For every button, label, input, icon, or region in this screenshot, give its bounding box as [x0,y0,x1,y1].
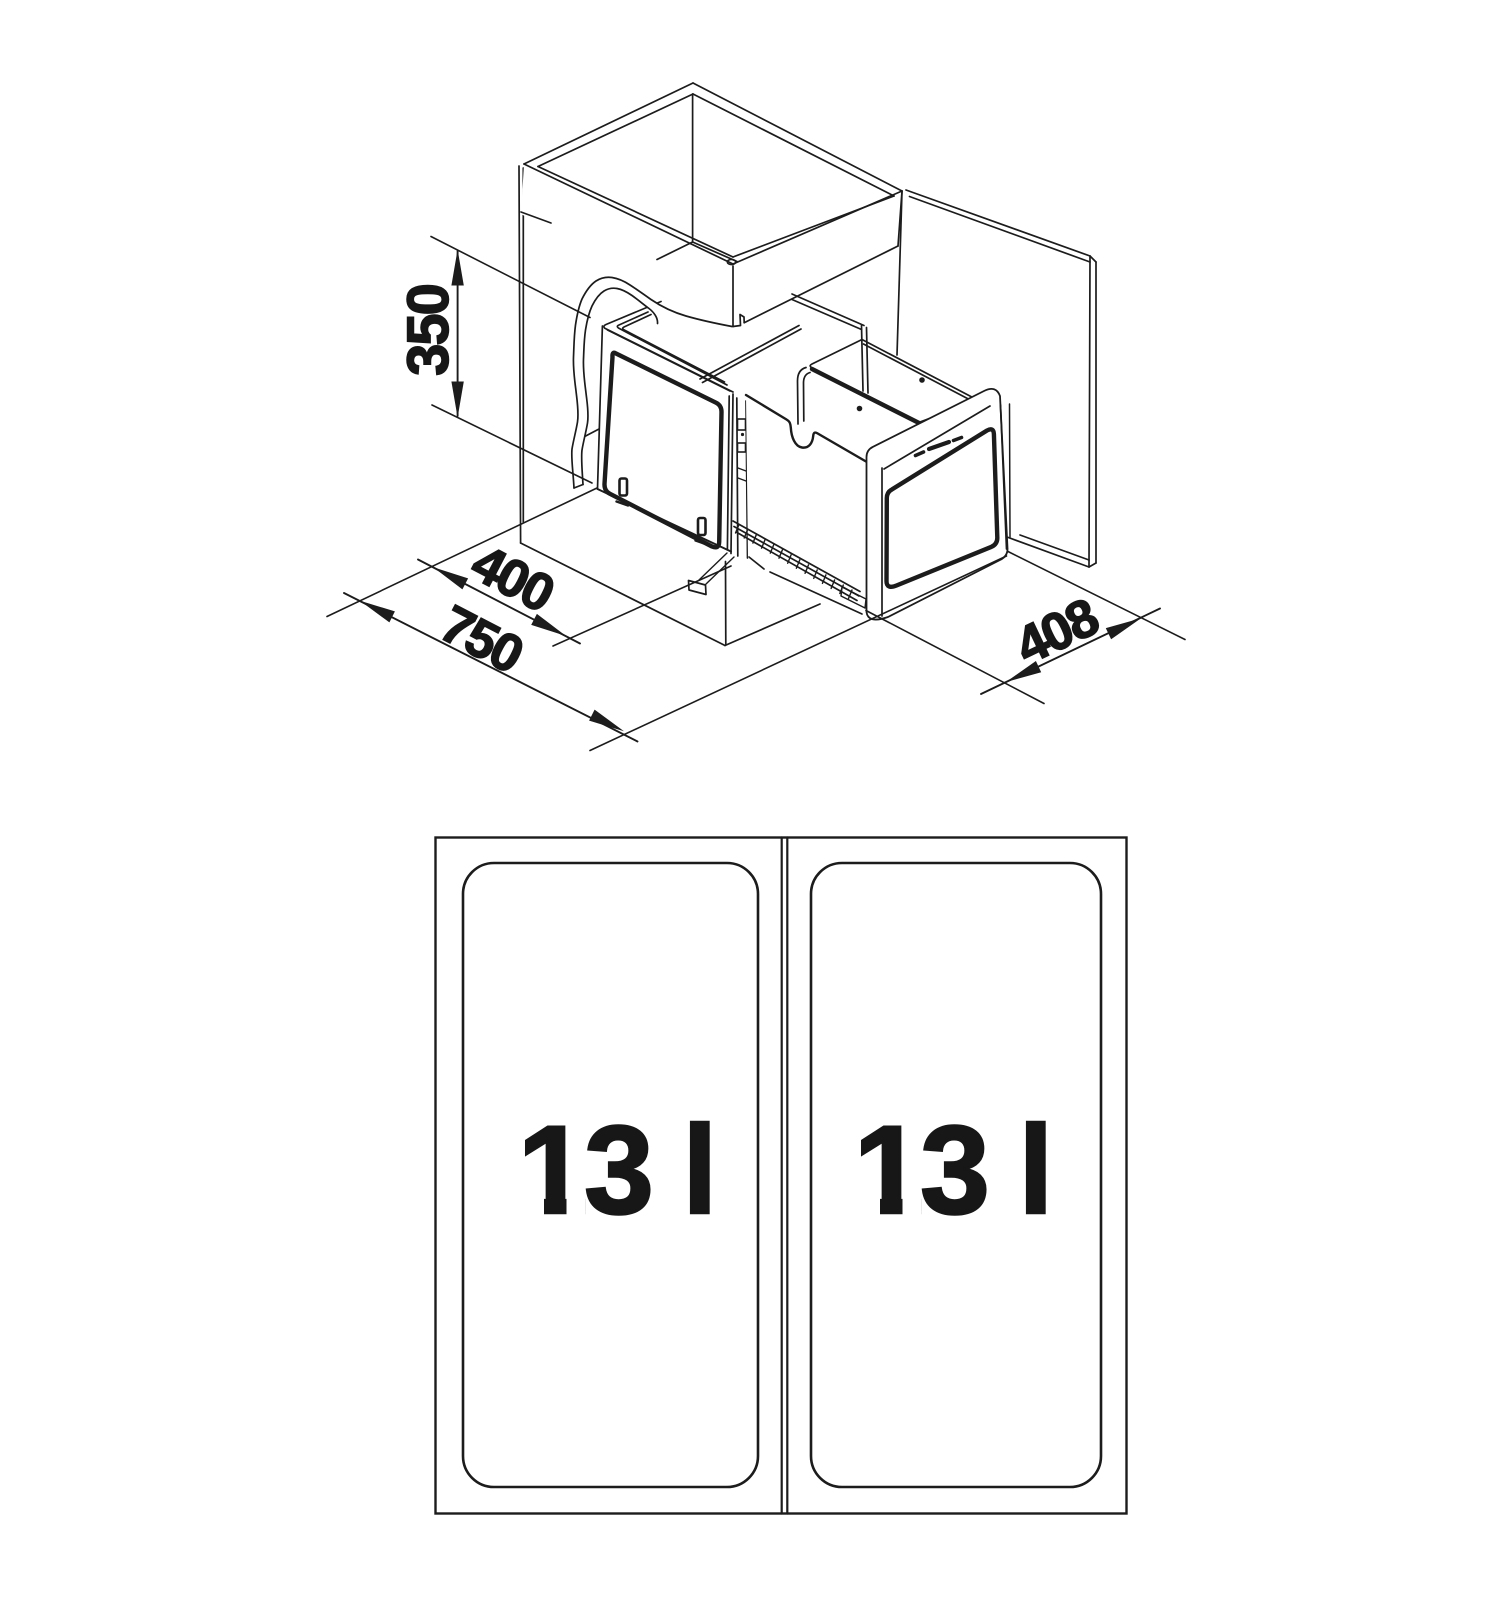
svg-text:13 l: 13 l [854,1101,1051,1240]
svg-text:350: 350 [396,285,461,376]
svg-text:408: 408 [1007,588,1107,677]
svg-text:13 l: 13 l [518,1101,715,1240]
